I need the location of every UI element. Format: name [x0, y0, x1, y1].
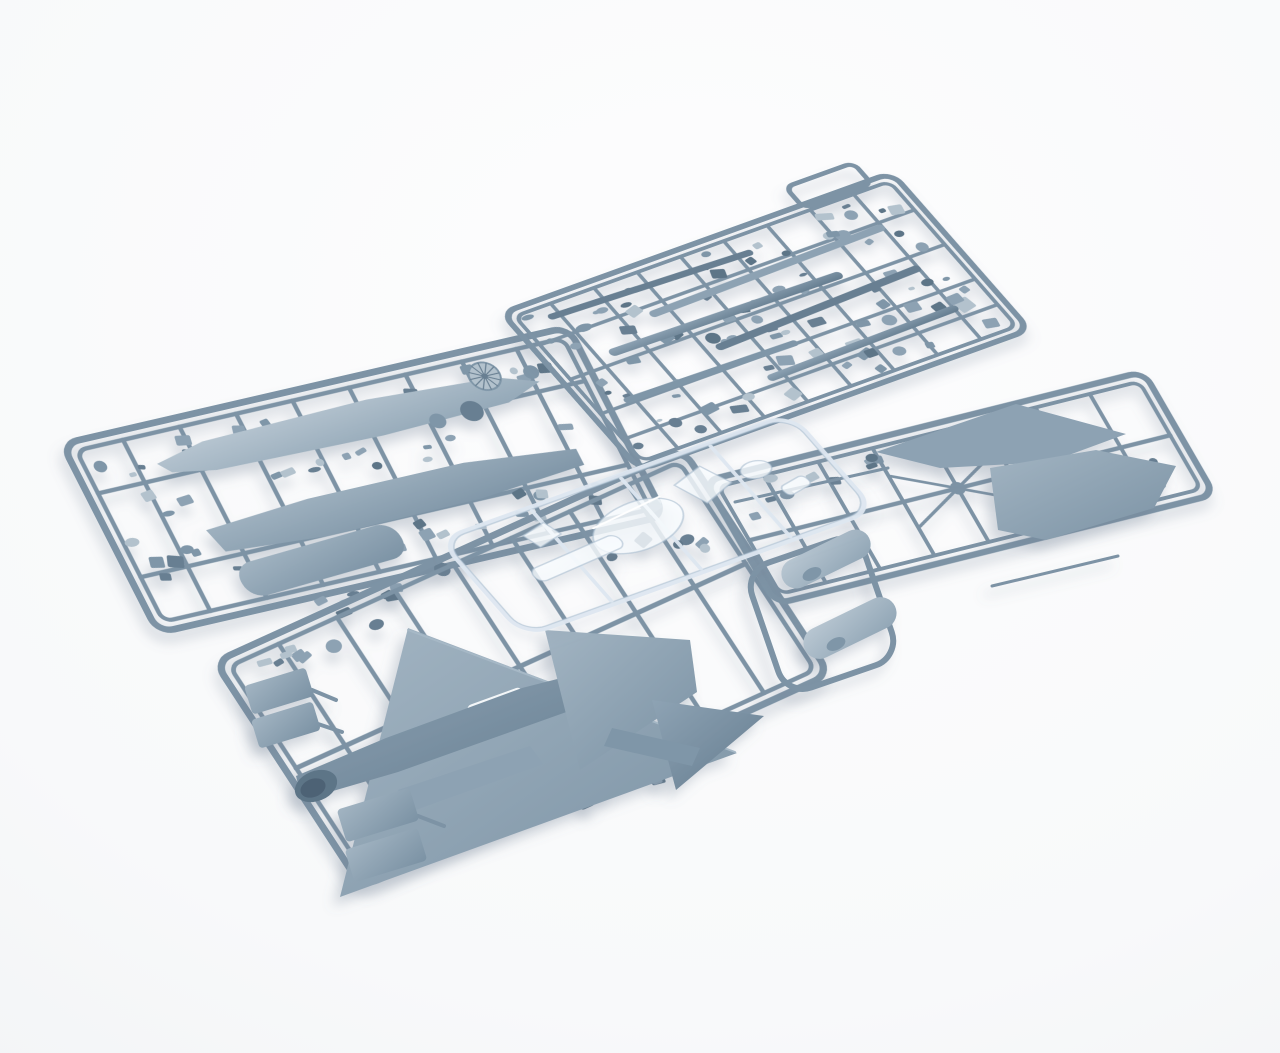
- sprue-c-large-parts: [244, 628, 764, 897]
- sprue-photo-canvas: [0, 0, 1280, 1053]
- photo-stage: [0, 0, 1280, 1053]
- sprue-photo: [0, 0, 1280, 1053]
